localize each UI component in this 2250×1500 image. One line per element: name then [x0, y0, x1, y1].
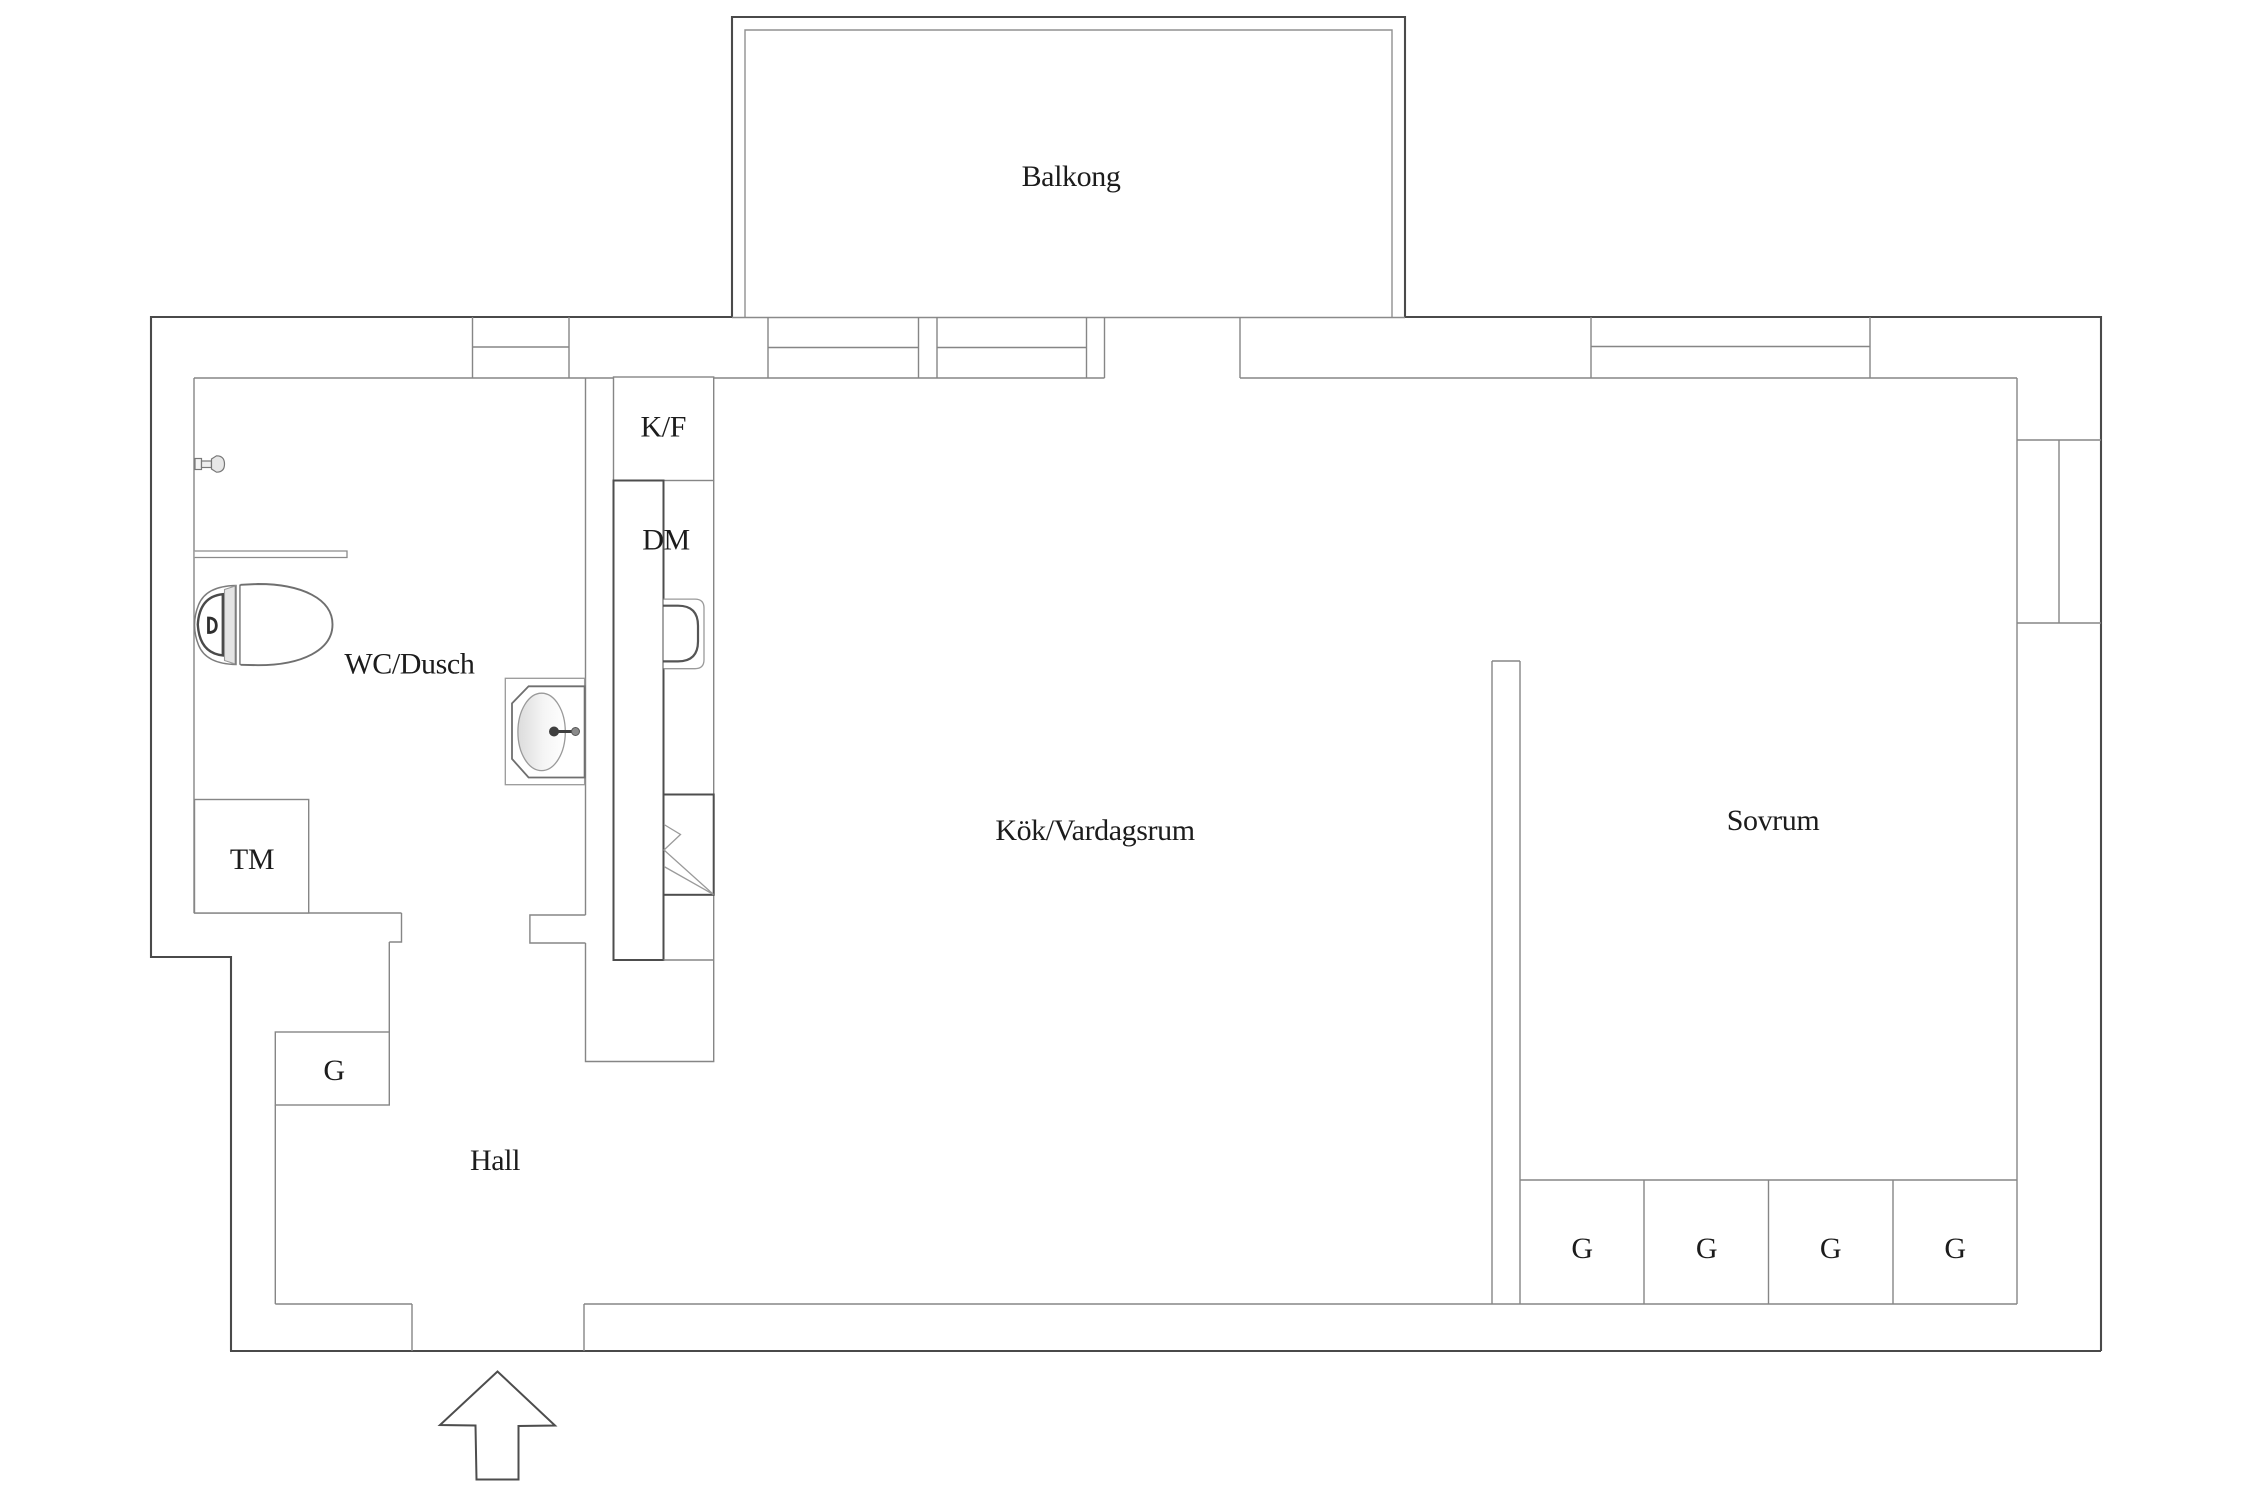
svg-text:G: G	[1696, 1232, 1717, 1265]
svg-text:G: G	[1944, 1232, 1965, 1265]
svg-text:DM: DM	[642, 524, 690, 557]
svg-text:WC/Dusch: WC/Dusch	[344, 647, 475, 680]
svg-text:Balkong: Balkong	[1022, 160, 1121, 193]
svg-text:Sovrum: Sovrum	[1727, 804, 1820, 837]
svg-text:G: G	[1820, 1232, 1841, 1265]
svg-text:Hall: Hall	[470, 1144, 520, 1177]
svg-text:G: G	[323, 1054, 344, 1087]
svg-text:K/F: K/F	[641, 411, 687, 444]
svg-text:G: G	[1571, 1232, 1592, 1265]
svg-text:Kök/Vardagsrum: Kök/Vardagsrum	[995, 814, 1194, 847]
svg-text:TM: TM	[230, 843, 274, 876]
